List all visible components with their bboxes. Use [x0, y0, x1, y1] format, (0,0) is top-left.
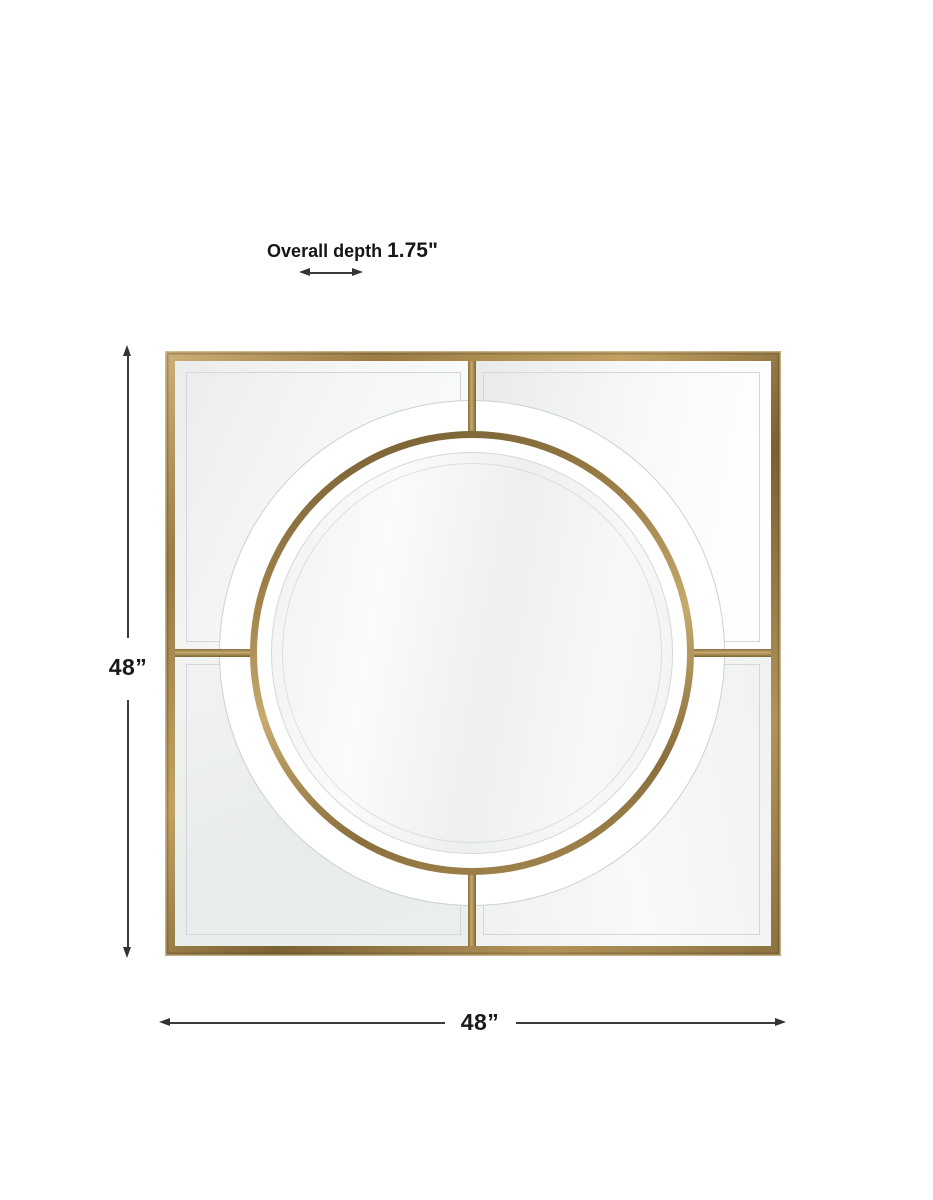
- frame-spoke-left: [175, 649, 255, 657]
- height-dimension-line-upper: [127, 353, 129, 638]
- depth-arrow-line: [307, 272, 353, 274]
- width-dimension-line-left: [169, 1022, 445, 1024]
- width-dimension-label: 48”: [440, 1011, 520, 1034]
- mirror-interior: [175, 361, 771, 946]
- product-dimension-diagram: Overall depth 1.75" 48” 48”: [0, 0, 933, 1200]
- width-dimension-line-right: [516, 1022, 776, 1024]
- depth-label: Overall depth: [267, 241, 382, 261]
- height-arrow-down-icon: [123, 947, 131, 958]
- depth-annotation-text: Overall depth 1.75": [225, 238, 480, 264]
- round-mirror-bevel-line: [282, 463, 662, 843]
- frame-spoke-right: [691, 649, 771, 657]
- frame-spoke-bottom: [468, 870, 476, 946]
- center-round-mirror: [271, 452, 673, 854]
- height-dimension-label: 48”: [88, 656, 168, 679]
- width-arrow-right-icon: [775, 1018, 786, 1026]
- depth-arrow-right-icon: [352, 268, 363, 276]
- mirror-frame: [165, 351, 781, 956]
- depth-value: 1.75": [387, 239, 438, 262]
- frame-spoke-top: [468, 361, 476, 437]
- height-dimension-line-lower: [127, 700, 129, 948]
